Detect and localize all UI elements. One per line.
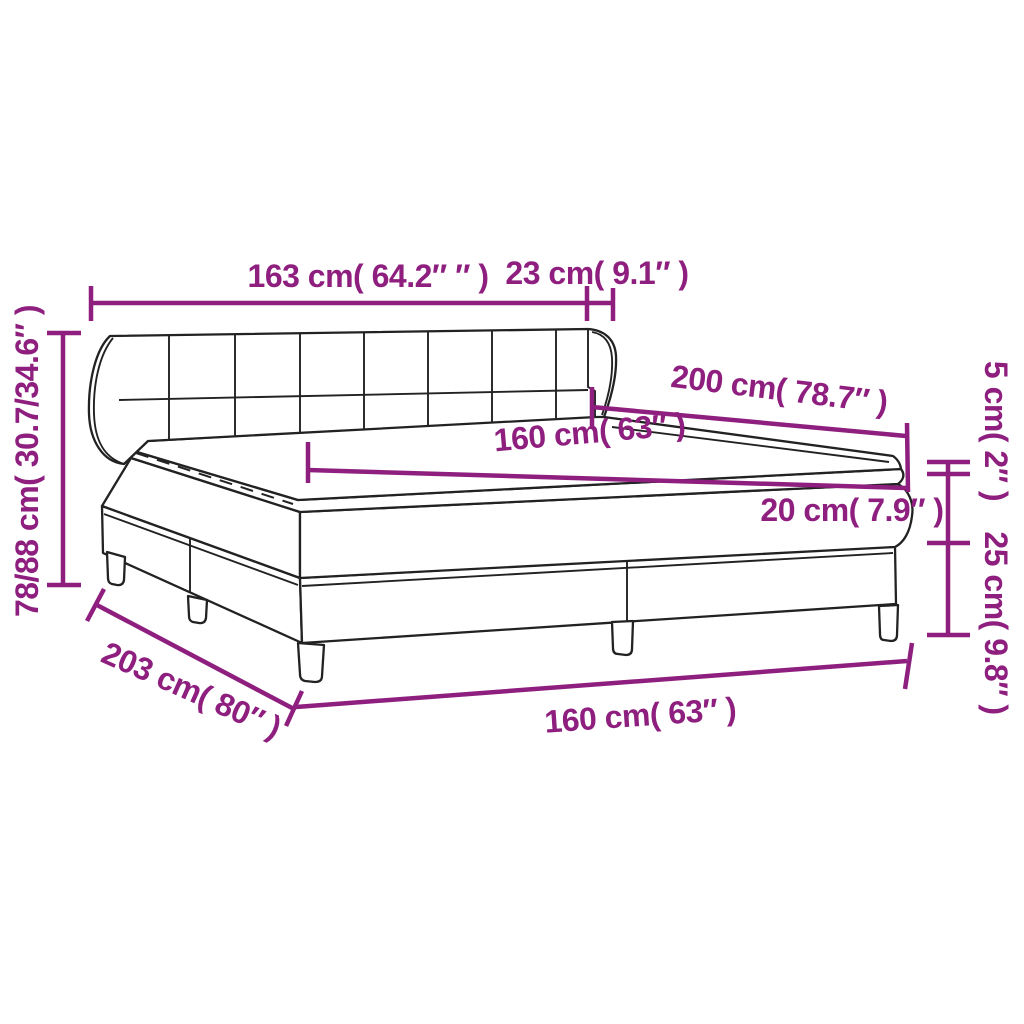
bed-leg	[188, 596, 207, 623]
dim-height-bracket	[927, 462, 970, 635]
label-mattress-thickness: 20 cm( 7.9″ )	[760, 492, 943, 528]
label-topper-thickness: 5 cm( 2″ )	[978, 361, 1014, 501]
label-base-height: 25 cm( 9.8″ )	[978, 531, 1014, 714]
dim-overall-height	[47, 333, 81, 585]
dimension-diagram: 163 cm( 64.2″ ″ ) 23 cm( 9.1″ ) 200 cm( …	[0, 0, 1024, 1024]
bed-leg	[879, 605, 898, 641]
bed-diagram-svg: 163 cm( 64.2″ ″ ) 23 cm( 9.1″ ) 200 cm( …	[0, 0, 1024, 1024]
label-bed-length: 200 cm( 78.7″ )	[669, 358, 889, 420]
bed-leg	[612, 621, 633, 655]
label-overall-height: 78/88 cm( 30.7/34.6″ )	[9, 305, 45, 617]
dim-headboard-side-depth	[587, 288, 613, 321]
label-headboard-side-depth: 23 cm( 9.1″ )	[505, 255, 688, 291]
label-headboard-width: 163 cm( 64.2″ ″ )	[248, 258, 489, 294]
label-mattress-width-bottom: 160 cm( 63″ )	[543, 690, 737, 739]
bed-leg	[107, 552, 125, 585]
bed-leg	[298, 643, 324, 682]
dim-mattress-width-bottom	[296, 643, 912, 707]
